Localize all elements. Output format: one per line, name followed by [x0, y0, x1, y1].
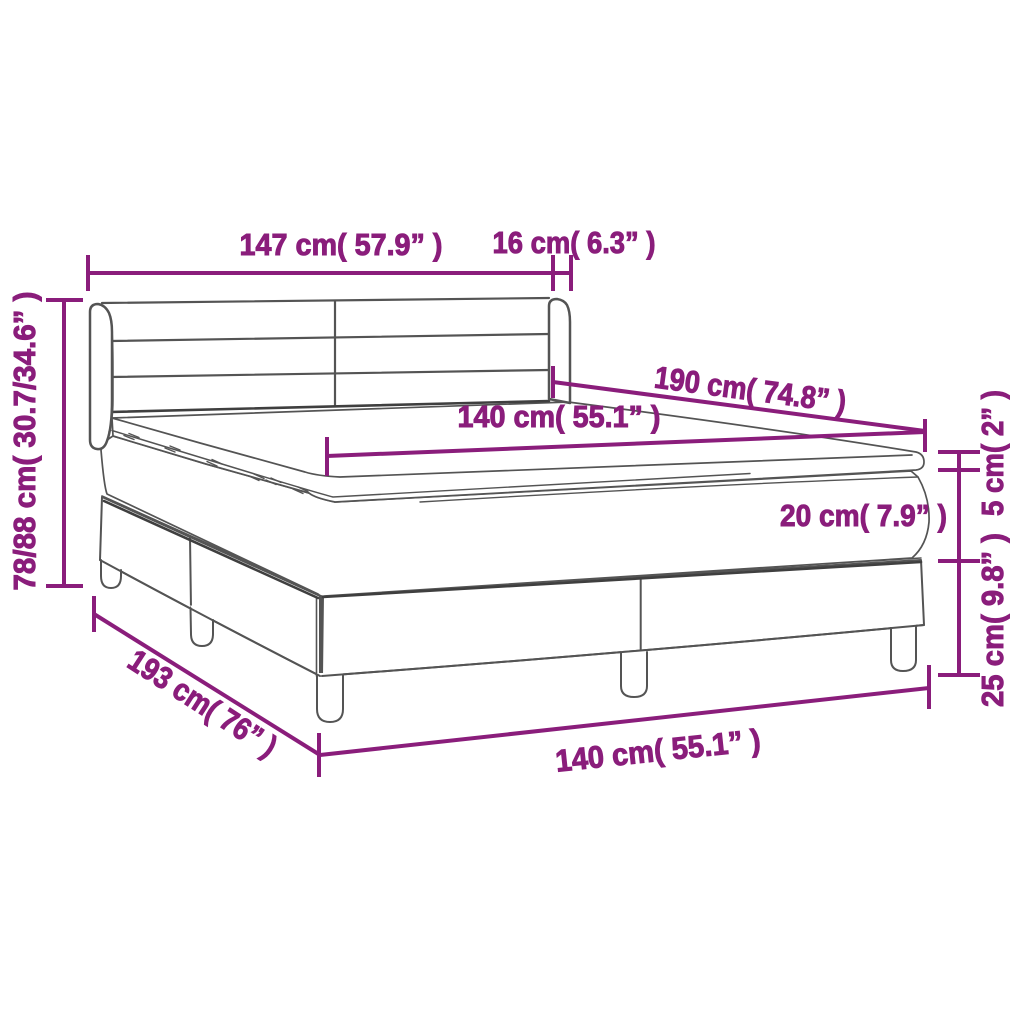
svg-text:190 cm( 74.8” ): 190 cm( 74.8” )	[652, 360, 848, 420]
svg-text:20 cm( 7.9” ): 20 cm( 7.9” )	[780, 498, 947, 533]
svg-text:140 cm( 55.1” ): 140 cm( 55.1” )	[458, 399, 661, 434]
svg-text:16 cm( 6.3” ): 16 cm( 6.3” )	[493, 225, 656, 260]
svg-text:78/88 cm( 30.7/34.6” ): 78/88 cm( 30.7/34.6” )	[7, 292, 42, 591]
svg-text:193 cm( 76” ): 193 cm( 76” )	[122, 642, 284, 764]
svg-text:140 cm( 55.1” ): 140 cm( 55.1” )	[554, 722, 763, 778]
svg-text:5 cm( 2” ): 5 cm( 2” )	[975, 390, 1010, 516]
svg-text:25 cm( 9.8” ): 25 cm( 9.8” )	[975, 533, 1010, 707]
svg-text:147 cm( 57.9” ): 147 cm( 57.9” )	[240, 227, 443, 262]
